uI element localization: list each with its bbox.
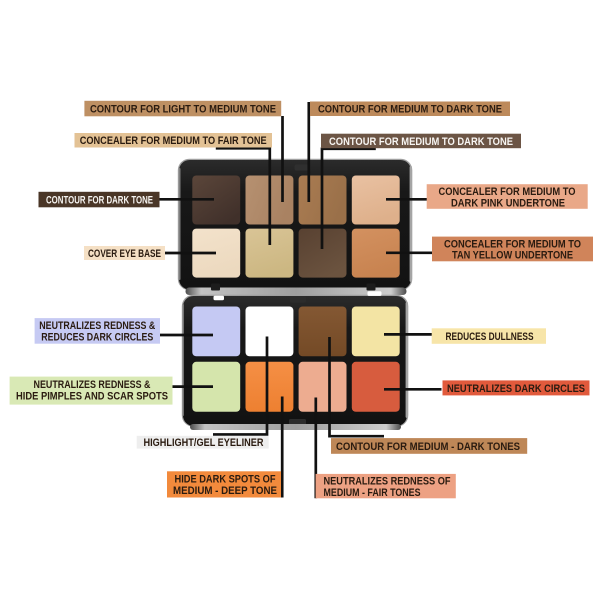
svg-text:HIGHLIGHT/GEL EYELINER: HIGHLIGHT/GEL EYELINER: [144, 437, 264, 449]
svg-text:NEUTRALIZES REDNESS OF: NEUTRALIZES REDNESS OF: [324, 476, 451, 488]
svg-text:NEUTRALIZES REDNESS &: NEUTRALIZES REDNESS &: [39, 320, 155, 332]
svg-text:CONTOUR FOR DARK TONE: CONTOUR FOR DARK TONE: [46, 195, 153, 207]
svg-text:CONCEALER FOR MEDIUM TO: CONCEALER FOR MEDIUM TO: [444, 238, 581, 250]
svg-text:CONTOUR FOR MEDIUM TO DARK TON: CONTOUR FOR MEDIUM TO DARK TONE: [318, 104, 502, 116]
svg-text:TAN YELLOW UNDERTONE: TAN YELLOW UNDERTONE: [452, 250, 573, 262]
svg-text:CONCEALER FOR MEDIUM TO: CONCEALER FOR MEDIUM TO: [439, 186, 576, 198]
svg-text:NEUTRALIZES DARK CIRCLES: NEUTRALIZES DARK CIRCLES: [447, 383, 585, 395]
svg-text:REDUCES DARK CIRCLES: REDUCES DARK CIRCLES: [41, 331, 153, 343]
svg-text:DARK PINK UNDERTONE: DARK PINK UNDERTONE: [451, 197, 565, 209]
svg-text:CONCEALER FOR MEDIUM TO FAIR T: CONCEALER FOR MEDIUM TO FAIR TONE: [80, 135, 267, 147]
svg-text:COVER EYE BASE: COVER EYE BASE: [88, 248, 161, 260]
svg-text:REDUCES DULLNESS: REDUCES DULLNESS: [446, 331, 534, 343]
svg-text:MEDIUM - FAIR TONES: MEDIUM - FAIR TONES: [324, 487, 421, 499]
svg-text:CONTOUR FOR MEDIUM - DARK TONE: CONTOUR FOR MEDIUM - DARK TONES: [336, 441, 520, 453]
svg-text:CONTOUR FOR MEDIUM TO DARK TON: CONTOUR FOR MEDIUM TO DARK TONE: [329, 136, 513, 148]
svg-text:HIDE PIMPLES AND SCAR SPOTS: HIDE PIMPLES AND SCAR SPOTS: [16, 390, 168, 402]
svg-text:CONTOUR FOR LIGHT TO MEDIUM TO: CONTOUR FOR LIGHT TO MEDIUM TONE: [90, 104, 276, 116]
svg-text:HIDE DARK SPOTS OF: HIDE DARK SPOTS OF: [175, 473, 276, 485]
svg-text:MEDIUM - DEEP TONE: MEDIUM - DEEP TONE: [173, 485, 277, 497]
svg-text:NEUTRALIZES REDNESS &: NEUTRALIZES REDNESS &: [34, 379, 151, 391]
